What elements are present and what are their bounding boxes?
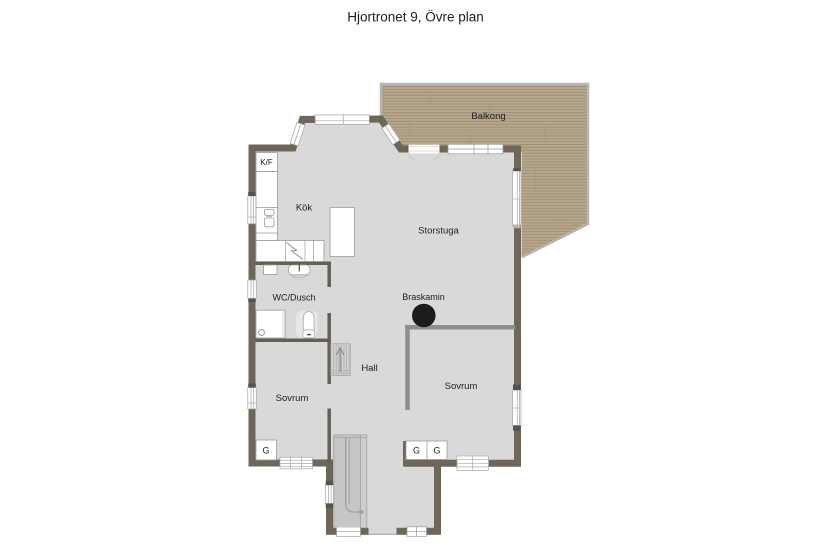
svg-text:Hjortronet 9, Övre plan: Hjortronet 9, Övre plan xyxy=(347,10,484,25)
svg-text:G: G xyxy=(262,446,269,456)
svg-text:K/F: K/F xyxy=(260,158,273,167)
svg-text:WC/Dusch: WC/Dusch xyxy=(272,293,315,303)
svg-text:Balkong: Balkong xyxy=(471,111,505,122)
svg-text:Sovrum: Sovrum xyxy=(445,381,478,392)
svg-text:Braskamin: Braskamin xyxy=(402,292,445,302)
svg-text:Kök: Kök xyxy=(296,203,313,214)
svg-text:Storstuga: Storstuga xyxy=(418,226,459,237)
svg-text:G: G xyxy=(413,446,420,456)
svg-text:G: G xyxy=(433,446,440,456)
svg-text:Hall: Hall xyxy=(361,363,377,374)
svg-text:Sovrum: Sovrum xyxy=(276,393,309,404)
